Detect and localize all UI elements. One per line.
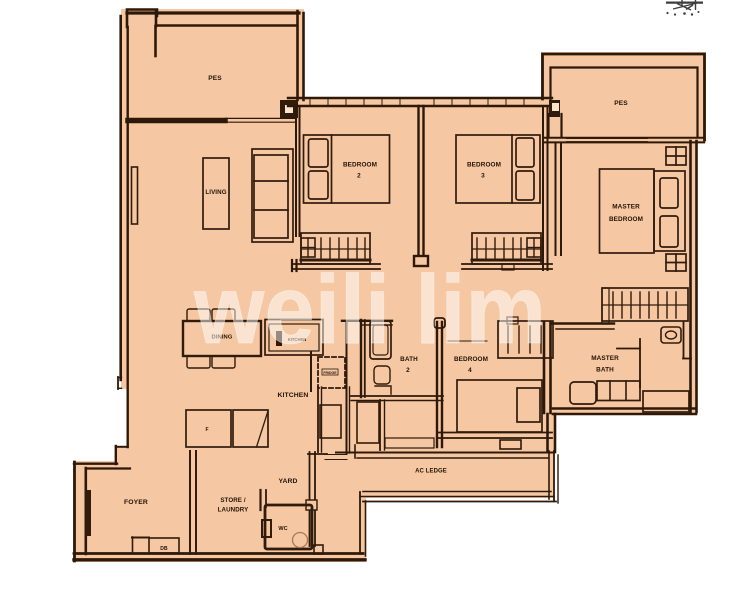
svg-text:BEDROOM: BEDROOM (343, 162, 377, 169)
svg-text:BATH: BATH (596, 367, 614, 374)
svg-text:weili lim: weili lim (193, 255, 546, 364)
svg-text:DB: DB (160, 546, 168, 552)
svg-text:PES: PES (208, 75, 222, 82)
svg-text:3: 3 (481, 173, 485, 180)
svg-text:KITCHEN: KITCHEN (278, 392, 309, 399)
svg-text:LAUNDRY: LAUNDRY (218, 507, 249, 514)
svg-text:BEDROOM: BEDROOM (609, 216, 643, 223)
svg-text:FRIDGE: FRIDGE (323, 371, 337, 375)
svg-text:WC: WC (278, 526, 287, 532)
svg-text:2: 2 (357, 173, 361, 180)
svg-text:MASTER: MASTER (591, 355, 619, 362)
svg-text:LIVING: LIVING (205, 189, 226, 196)
svg-text:4: 4 (468, 367, 472, 374)
svg-text:FOYER: FOYER (124, 499, 148, 506)
svg-text:MASTER: MASTER (612, 204, 640, 211)
svg-text:BEDROOM: BEDROOM (467, 162, 501, 169)
svg-text:F: F (205, 427, 208, 433)
svg-text:AC LEDGE: AC LEDGE (415, 469, 447, 475)
svg-text:2: 2 (406, 367, 410, 374)
svg-text:YARD: YARD (278, 478, 297, 485)
svg-text:PES: PES (614, 100, 628, 107)
svg-text:STORE /: STORE / (220, 497, 246, 504)
